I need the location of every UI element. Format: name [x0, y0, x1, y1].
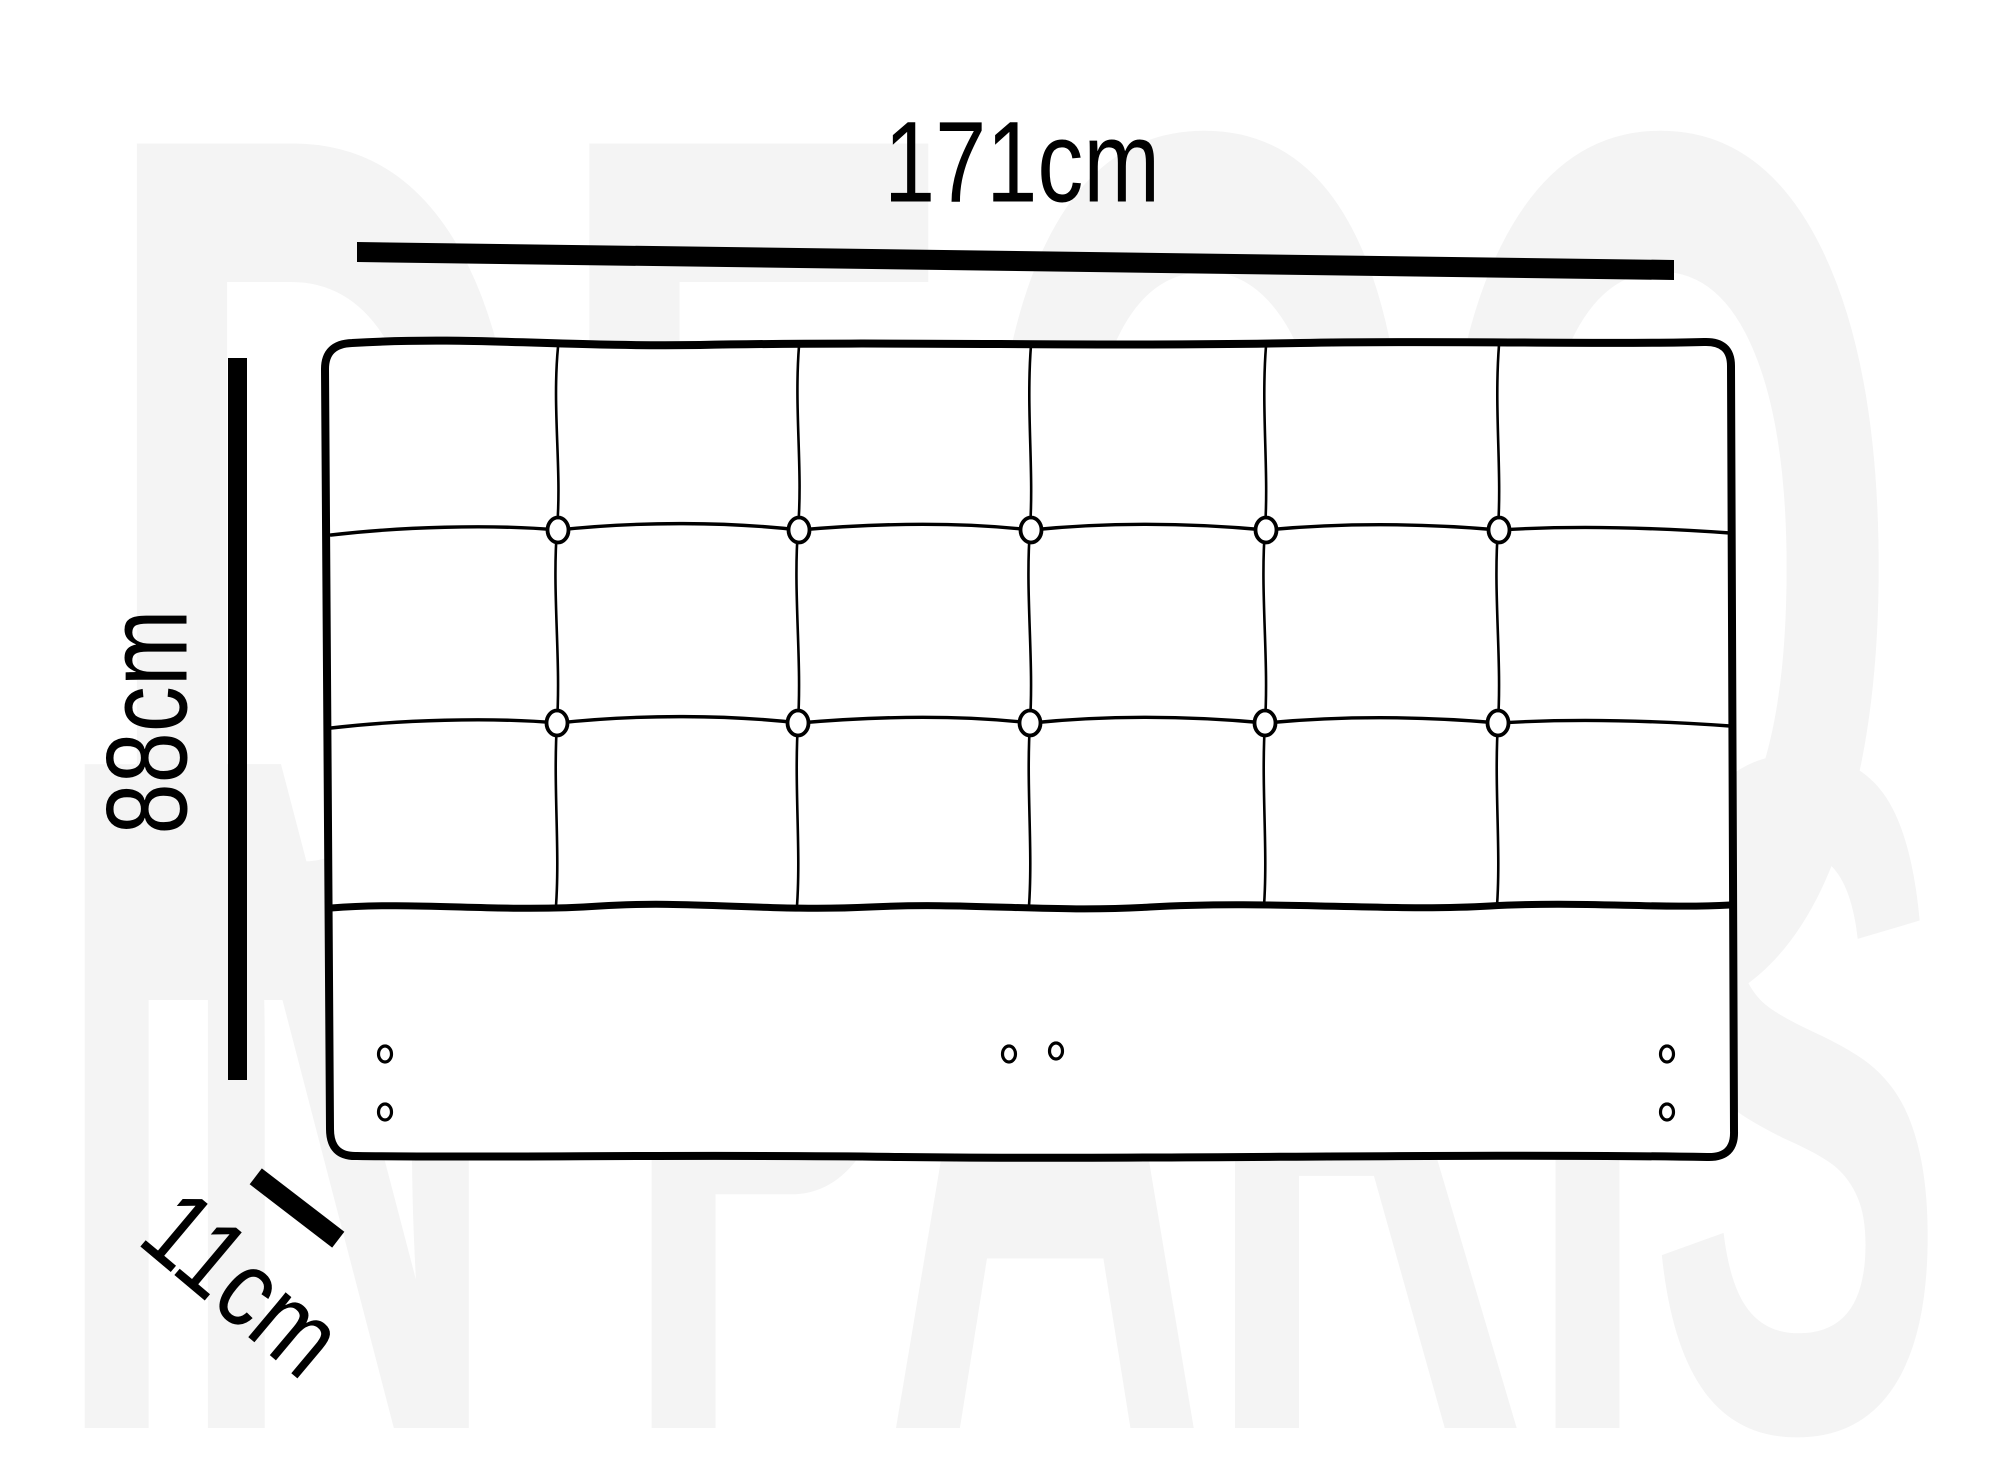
tuft-button: [1256, 518, 1277, 543]
tuft-line-v5: [1496, 345, 1499, 906]
tuft-line-v4: [1263, 346, 1266, 906]
base-seam: [331, 904, 1730, 909]
tuft-button: [1489, 518, 1510, 543]
tuft-button: [788, 711, 809, 736]
mounting-hole: [379, 1104, 392, 1120]
tuft-button: [1021, 518, 1042, 543]
height-dimension-label: 88cm: [84, 610, 212, 835]
mounting-hole: [1661, 1104, 1674, 1120]
headboard-drawing: [325, 341, 1734, 1158]
tuft-button: [1255, 711, 1276, 736]
diagram-canvas: DECO IN PARIS: [0, 0, 2000, 1460]
mounting-hole: [1003, 1046, 1016, 1062]
mounting-hole: [1661, 1046, 1674, 1062]
tuft-button: [1020, 711, 1041, 736]
tuft-line-v3: [1028, 345, 1031, 906]
tuft-button: [1488, 711, 1509, 736]
height-dimension-line: [228, 358, 247, 1080]
mounting-hole: [1050, 1043, 1063, 1059]
tuft-button: [548, 518, 569, 543]
mounting-hole: [379, 1046, 392, 1062]
tuft-button: [789, 518, 810, 543]
tuft-button: [547, 711, 568, 736]
width-dimension-label: 171cm: [884, 99, 1160, 227]
